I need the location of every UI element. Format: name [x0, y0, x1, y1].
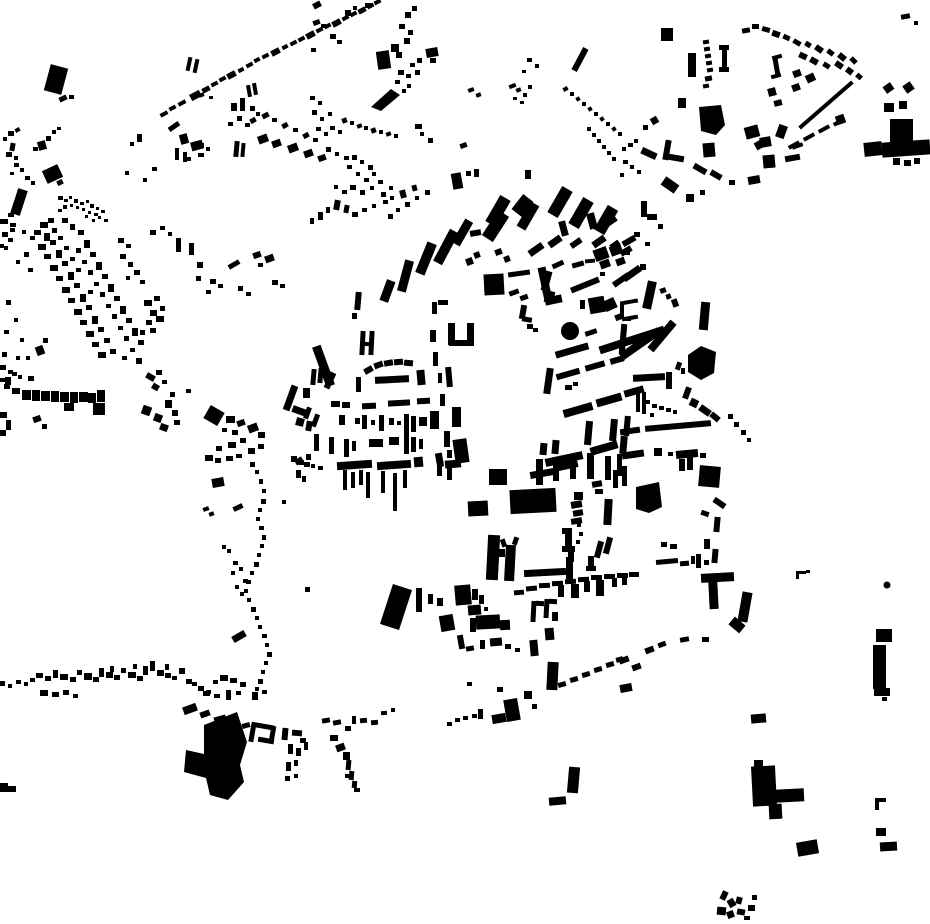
building	[444, 431, 450, 447]
building	[351, 472, 355, 488]
building	[595, 489, 603, 494]
building	[748, 905, 755, 911]
building	[196, 276, 201, 281]
building	[64, 199, 68, 202]
building	[316, 127, 321, 131]
building	[792, 69, 802, 78]
building	[48, 218, 54, 223]
building	[335, 152, 339, 156]
building	[253, 57, 260, 63]
building	[586, 212, 598, 230]
building	[818, 124, 830, 133]
building	[467, 682, 472, 686]
building	[247, 598, 251, 602]
building	[637, 170, 641, 174]
building	[64, 246, 69, 250]
building	[294, 760, 298, 766]
building	[0, 378, 5, 382]
building	[385, 131, 391, 136]
building	[512, 536, 519, 545]
building	[673, 410, 677, 414]
building	[24, 252, 29, 257]
building	[272, 118, 277, 122]
building	[513, 97, 517, 100]
building	[562, 86, 568, 92]
building	[211, 477, 224, 488]
building	[722, 50, 727, 68]
building	[231, 103, 237, 111]
building	[882, 697, 887, 701]
building	[553, 457, 559, 481]
building	[680, 561, 689, 567]
building	[785, 154, 801, 163]
building	[6, 420, 11, 430]
building	[491, 713, 506, 724]
building	[415, 196, 419, 200]
building	[600, 272, 605, 276]
building	[46, 136, 51, 141]
building	[661, 176, 680, 193]
building	[449, 340, 474, 346]
building	[873, 645, 886, 689]
building	[265, 643, 269, 647]
building	[228, 442, 236, 448]
building	[365, 3, 371, 8]
building	[709, 411, 721, 422]
building	[570, 455, 576, 479]
building	[193, 59, 200, 74]
building	[88, 393, 96, 403]
building	[457, 635, 465, 650]
building	[415, 124, 422, 129]
building	[525, 170, 531, 179]
building	[468, 604, 482, 615]
building	[165, 664, 169, 670]
building	[226, 70, 237, 80]
building	[643, 125, 648, 130]
building	[465, 257, 474, 266]
building	[433, 352, 438, 366]
building	[90, 252, 96, 257]
building	[352, 781, 358, 788]
building	[330, 126, 335, 130]
building	[36, 673, 43, 678]
district-southwest-village-row	[0, 661, 211, 698]
building	[343, 752, 350, 760]
building	[313, 138, 318, 142]
building	[703, 84, 710, 89]
building	[577, 523, 581, 527]
building	[251, 607, 256, 612]
building	[294, 774, 298, 778]
building	[719, 890, 728, 901]
building	[262, 634, 267, 638]
building	[605, 456, 611, 480]
building	[678, 98, 686, 108]
building	[875, 798, 886, 802]
building	[472, 589, 478, 600]
building	[680, 636, 690, 642]
building	[255, 470, 259, 474]
building	[618, 132, 622, 136]
building	[597, 139, 601, 143]
building	[439, 614, 456, 632]
building	[233, 141, 239, 157]
building	[84, 673, 92, 680]
building	[474, 169, 479, 177]
building	[605, 661, 614, 668]
building	[397, 421, 401, 425]
building	[250, 106, 255, 111]
building	[140, 330, 145, 335]
building	[396, 52, 402, 58]
building	[156, 316, 164, 322]
building	[584, 421, 593, 446]
district-south-village	[322, 691, 580, 806]
building	[775, 124, 788, 139]
building	[326, 147, 331, 152]
building	[380, 279, 396, 303]
building	[381, 192, 386, 197]
building	[728, 414, 733, 419]
building	[98, 216, 101, 219]
building	[775, 788, 805, 802]
building	[603, 499, 612, 525]
building	[151, 383, 160, 392]
building	[634, 232, 640, 237]
building	[644, 646, 655, 655]
building	[796, 571, 799, 579]
building	[744, 124, 761, 139]
building	[126, 318, 132, 323]
building	[237, 116, 242, 121]
district-southeast-scatter	[618, 457, 897, 920]
building	[92, 219, 95, 222]
building	[214, 694, 220, 698]
building	[282, 500, 286, 504]
building	[654, 448, 662, 456]
building	[666, 408, 671, 412]
building	[658, 224, 663, 229]
building	[199, 709, 210, 718]
building	[218, 76, 226, 83]
building	[569, 676, 578, 683]
building	[74, 199, 78, 203]
building	[52, 130, 56, 134]
building	[70, 204, 73, 207]
building	[306, 454, 311, 460]
building	[170, 392, 175, 397]
district-south-center	[380, 453, 639, 692]
building-east-edge-blob	[688, 346, 716, 380]
building	[573, 509, 584, 517]
building	[168, 105, 176, 112]
building	[767, 87, 777, 97]
building	[312, 19, 320, 26]
building	[20, 338, 24, 342]
building	[62, 261, 68, 266]
building	[707, 68, 714, 73]
building	[645, 420, 711, 432]
building	[310, 96, 315, 100]
building	[565, 385, 572, 390]
building	[126, 244, 131, 248]
building	[40, 690, 48, 696]
building	[428, 138, 433, 143]
building	[485, 195, 510, 227]
building	[88, 290, 93, 294]
building	[140, 280, 145, 284]
building	[343, 470, 347, 490]
building	[445, 367, 453, 387]
building	[586, 566, 596, 571]
building	[709, 169, 722, 180]
building	[411, 437, 416, 452]
building	[0, 365, 6, 370]
building	[398, 70, 404, 75]
building	[287, 143, 299, 154]
building	[371, 720, 378, 726]
building	[335, 743, 346, 753]
building	[591, 575, 602, 580]
building	[226, 456, 233, 461]
building	[258, 444, 264, 449]
building	[630, 165, 634, 169]
building	[285, 776, 290, 781]
building	[362, 415, 367, 429]
building	[93, 677, 99, 682]
building	[210, 81, 218, 88]
building	[326, 207, 330, 213]
building	[562, 546, 575, 552]
building	[206, 290, 211, 294]
building	[381, 711, 387, 716]
building	[356, 123, 362, 128]
building	[405, 12, 411, 18]
building	[893, 158, 900, 165]
building	[82, 260, 87, 264]
building	[122, 356, 127, 360]
building	[370, 127, 376, 133]
building	[289, 40, 297, 47]
building	[303, 149, 314, 159]
building	[466, 645, 475, 651]
building	[24, 682, 28, 686]
building	[876, 828, 886, 836]
building	[37, 140, 47, 151]
building	[551, 440, 559, 455]
building	[876, 629, 892, 642]
building	[132, 328, 138, 336]
building	[352, 441, 356, 451]
building	[350, 185, 356, 190]
building	[394, 134, 398, 138]
building	[2, 352, 7, 357]
building	[98, 352, 106, 358]
building	[78, 230, 84, 235]
building	[636, 390, 640, 412]
building	[581, 671, 590, 678]
building	[631, 663, 642, 672]
building-southwest-factory-main	[184, 712, 247, 800]
building	[773, 59, 781, 76]
building	[899, 101, 907, 109]
building	[334, 185, 338, 189]
building	[688, 53, 696, 77]
building	[803, 132, 815, 141]
building	[157, 670, 164, 676]
building	[246, 292, 251, 296]
building	[333, 719, 342, 725]
building	[76, 206, 79, 209]
building	[303, 388, 310, 398]
building	[137, 676, 143, 681]
building	[556, 368, 581, 380]
building	[880, 842, 897, 852]
building	[696, 554, 701, 568]
building	[494, 248, 503, 256]
building	[254, 562, 259, 567]
building	[68, 272, 74, 280]
building	[101, 210, 105, 213]
building	[569, 237, 582, 249]
building	[152, 167, 157, 171]
building	[622, 147, 626, 151]
building	[369, 439, 383, 447]
building	[281, 728, 288, 740]
building	[0, 430, 6, 436]
building	[419, 417, 427, 426]
building	[236, 454, 242, 458]
building	[466, 171, 471, 176]
building	[114, 675, 120, 680]
building	[747, 438, 751, 442]
building	[186, 57, 193, 72]
building	[430, 330, 436, 342]
building	[489, 469, 507, 485]
building	[642, 280, 657, 309]
building	[104, 219, 108, 222]
building	[144, 300, 152, 306]
building	[425, 190, 430, 195]
district-top-road-ribbon	[160, 0, 382, 162]
building	[459, 142, 467, 149]
building	[414, 457, 424, 468]
building	[362, 208, 367, 212]
building	[702, 143, 715, 158]
building	[359, 470, 363, 485]
building	[705, 75, 713, 81]
building	[558, 585, 564, 597]
building	[8, 238, 13, 242]
building	[172, 676, 177, 680]
building	[476, 614, 501, 629]
building	[292, 730, 302, 737]
building	[106, 672, 113, 678]
building	[248, 448, 255, 454]
building	[126, 276, 130, 280]
building	[354, 292, 362, 310]
building	[751, 765, 777, 806]
building	[247, 423, 259, 434]
building	[160, 226, 165, 230]
building	[260, 544, 264, 548]
building	[523, 93, 527, 97]
building	[201, 85, 210, 93]
building	[371, 420, 375, 425]
building-round-building-center	[561, 322, 579, 340]
building	[226, 690, 231, 700]
district-southwest-link-road	[141, 370, 313, 463]
building	[356, 172, 360, 176]
building	[240, 682, 246, 687]
building	[826, 48, 835, 56]
building	[737, 591, 752, 622]
building	[430, 58, 436, 63]
building	[595, 393, 622, 408]
building	[10, 172, 14, 175]
building	[52, 692, 59, 697]
building	[297, 36, 305, 43]
building	[771, 30, 781, 38]
building	[14, 163, 19, 167]
building	[647, 214, 657, 220]
figure-ground-map	[0, 0, 930, 924]
building	[249, 117, 257, 124]
building	[138, 340, 144, 345]
building	[363, 365, 374, 375]
building	[3, 137, 7, 141]
building	[302, 132, 310, 139]
building	[393, 473, 397, 511]
building	[381, 471, 385, 493]
building	[311, 464, 315, 468]
building	[514, 590, 524, 596]
building	[914, 158, 920, 164]
building	[0, 412, 7, 418]
building	[352, 716, 356, 724]
building	[215, 458, 221, 463]
building	[288, 744, 293, 754]
building	[883, 82, 895, 94]
building	[270, 47, 281, 57]
building	[317, 154, 327, 162]
building	[543, 368, 554, 395]
district-east-grid	[530, 232, 751, 479]
building	[562, 528, 572, 534]
building	[0, 681, 5, 686]
building	[713, 517, 720, 532]
building	[792, 38, 801, 46]
building	[552, 612, 558, 621]
building	[35, 345, 46, 356]
building	[378, 180, 383, 184]
building	[352, 212, 358, 217]
building	[747, 175, 760, 185]
building	[499, 549, 505, 557]
building	[30, 678, 35, 682]
building	[570, 500, 582, 509]
building	[555, 342, 590, 358]
building	[281, 122, 289, 129]
building	[622, 265, 642, 282]
building	[691, 556, 695, 564]
building	[176, 238, 181, 252]
building	[805, 72, 817, 83]
building	[388, 214, 393, 219]
district-dotted-lanes	[459, 47, 622, 161]
building	[377, 460, 411, 470]
